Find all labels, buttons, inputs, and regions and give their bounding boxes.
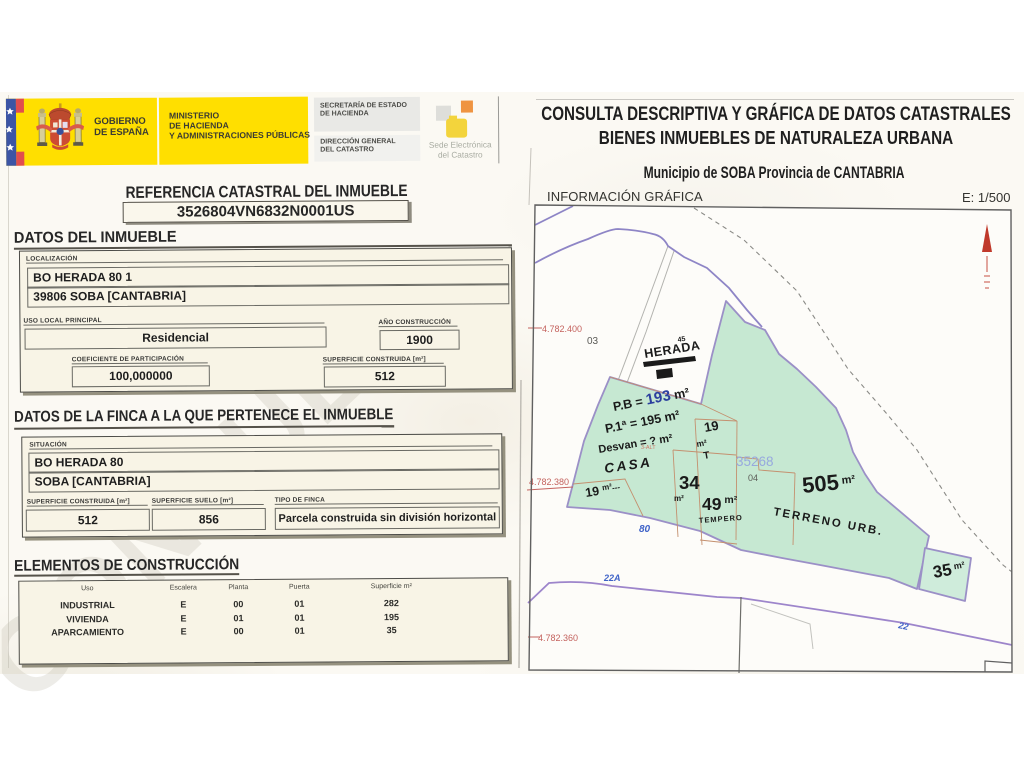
svg-text:34: 34 (679, 472, 700, 493)
svg-text:04: 04 (748, 473, 758, 483)
svg-text:45: 45 (677, 336, 686, 344)
svg-text:4.782.360: 4.782.360 (538, 633, 578, 643)
svg-text:03: 03 (587, 336, 599, 347)
svg-text:m²: m² (674, 494, 684, 503)
svg-text:4.782.400: 4.782.400 (542, 324, 582, 334)
svg-text:22A: 22A (603, 573, 621, 583)
svg-text:m²: m² (696, 437, 708, 449)
svg-text:80: 80 (639, 524, 651, 535)
svg-text:35268: 35268 (736, 454, 774, 469)
svg-text:4.782.380: 4.782.380 (529, 477, 569, 487)
svg-text:19: 19 (703, 418, 720, 435)
